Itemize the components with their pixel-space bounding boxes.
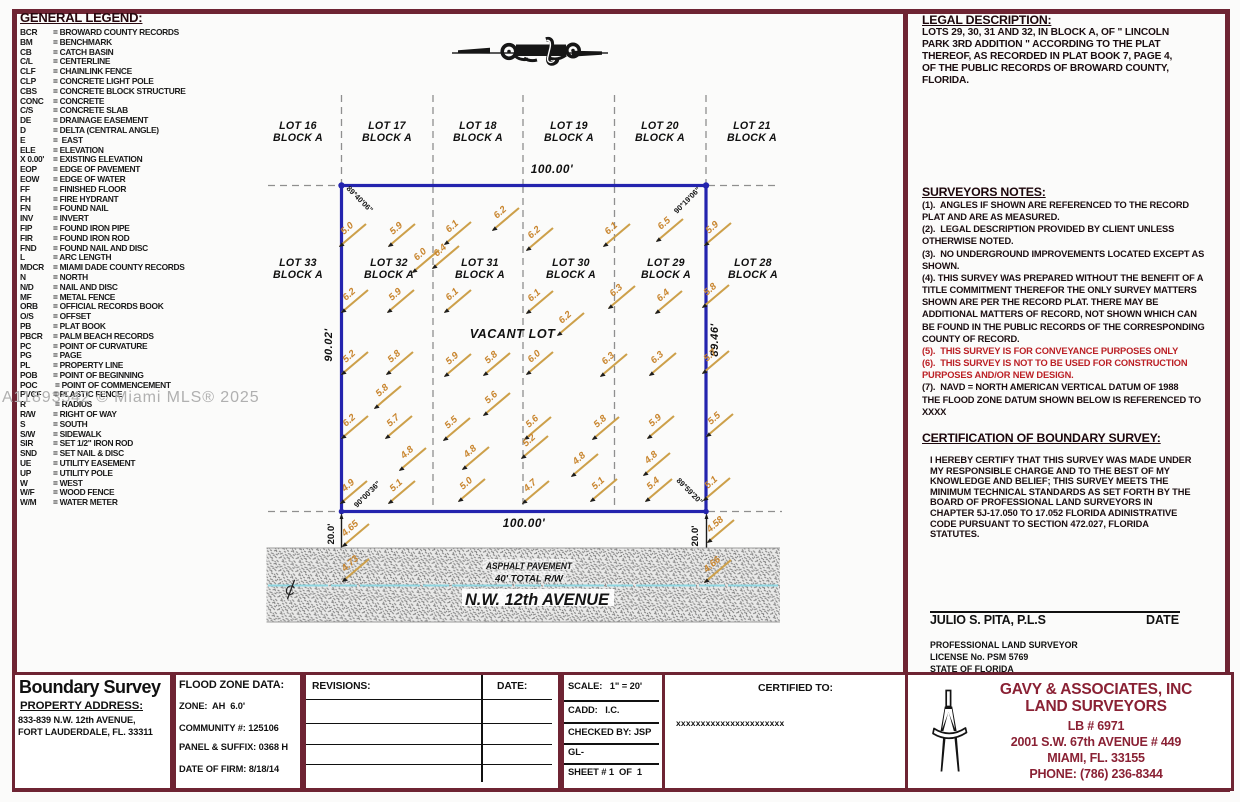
svg-text:BLOCK A: BLOCK A (728, 269, 778, 281)
svg-text:20.0': 20.0' (326, 524, 337, 545)
svg-text:100.00': 100.00' (531, 162, 574, 176)
svg-text:LOT 33: LOT 33 (279, 257, 317, 269)
svg-text:4.65: 4.65 (339, 518, 361, 540)
svg-text:BLOCK A: BLOCK A (544, 132, 594, 144)
svg-text:LOT 28: LOT 28 (734, 257, 772, 269)
svg-text:LOT 31: LOT 31 (461, 257, 499, 269)
svg-text:89°59'20": 89°59'20" (675, 476, 706, 507)
svg-text:BLOCK A: BLOCK A (273, 269, 323, 281)
svg-text:20.0': 20.0' (690, 526, 701, 547)
svg-text:BLOCK A: BLOCK A (727, 132, 777, 144)
svg-text:LOT 29: LOT 29 (647, 257, 685, 269)
svg-text:90°00'36": 90°00'36" (352, 479, 383, 510)
svg-text:40' TOTAL R/W: 40' TOTAL R/W (494, 574, 564, 584)
svg-text:LOT 30: LOT 30 (552, 257, 590, 269)
svg-text:VACANT: VACANT (470, 327, 525, 341)
svg-text:LOT 32: LOT 32 (370, 257, 408, 269)
svg-text:100.00': 100.00' (503, 516, 546, 530)
svg-text:BLOCK A: BLOCK A (273, 132, 323, 144)
svg-text:90.02': 90.02' (323, 328, 335, 361)
svg-text:BLOCK A: BLOCK A (635, 132, 685, 144)
svg-text:LOT 17: LOT 17 (368, 120, 407, 132)
svg-text:N.W. 12th AVENUE: N.W. 12th AVENUE (465, 590, 610, 609)
svg-text:LOT 21: LOT 21 (733, 120, 771, 132)
svg-text:BLOCK A: BLOCK A (364, 269, 414, 281)
svg-text:BLOCK A: BLOCK A (641, 269, 691, 281)
svg-text:LOT 20: LOT 20 (641, 120, 679, 132)
svg-text:LOT 18: LOT 18 (459, 120, 497, 132)
svg-text:LOT: LOT (529, 327, 556, 341)
svg-text:BLOCK A: BLOCK A (453, 132, 503, 144)
svg-text:89°40'06": 89°40'06" (345, 184, 376, 215)
svg-text:LOT 19: LOT 19 (550, 120, 588, 132)
svg-text:BLOCK A: BLOCK A (455, 269, 505, 281)
svg-text:90°19'06": 90°19'06" (672, 185, 703, 216)
svg-text:BLOCK A: BLOCK A (362, 132, 412, 144)
svg-text:ASPHALT PAVEMENT: ASPHALT PAVEMENT (485, 561, 573, 571)
svg-text:LOT 16: LOT 16 (279, 120, 317, 132)
svg-text:BLOCK A: BLOCK A (546, 269, 596, 281)
